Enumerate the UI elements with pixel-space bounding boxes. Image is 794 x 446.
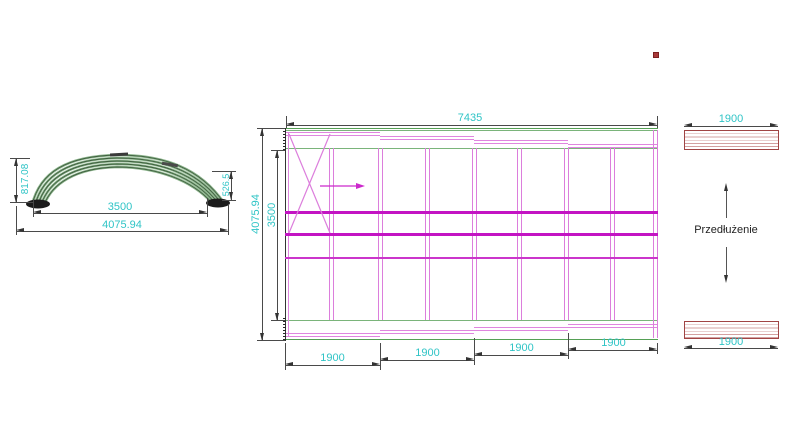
dim-line	[380, 360, 474, 361]
arrow-left-icon	[380, 357, 388, 361]
arrow-left-icon	[684, 123, 692, 127]
arrow-left-icon	[684, 345, 692, 349]
dim-text: 4075.94	[250, 181, 262, 247]
dim-text: 1900	[712, 336, 750, 348]
red-marker-dot	[653, 52, 659, 58]
arrow-down-icon	[260, 333, 264, 341]
arrow-left-icon	[285, 362, 293, 366]
dim-line	[684, 348, 778, 349]
extension-arrow-down-icon	[726, 247, 727, 277]
extension-line	[568, 333, 569, 359]
arrow-right-icon	[770, 345, 778, 349]
x-brace	[285, 128, 658, 341]
arrow-up-icon	[14, 158, 18, 166]
dim-line	[568, 350, 657, 351]
arrow-left-icon	[33, 210, 41, 214]
dim-text: 1900	[494, 342, 549, 354]
arrow-up-icon	[724, 183, 728, 191]
dim-text: 817.08	[20, 157, 31, 201]
dim-text: 3500	[266, 191, 278, 239]
dim-text: 1900	[305, 352, 360, 364]
arrow-right-icon	[466, 357, 474, 361]
extension-line	[33, 200, 34, 217]
extension-label: Przedłużenie	[688, 224, 764, 236]
dim-text: 1900	[586, 337, 641, 349]
dim-text: 1900	[400, 347, 455, 359]
arrow-right-icon	[560, 352, 568, 356]
extension-line	[228, 204, 229, 235]
dim-text: 526.5	[221, 169, 232, 201]
arrow-left-icon	[568, 347, 576, 351]
arrow-down-icon	[724, 275, 728, 283]
dim-line	[684, 126, 778, 127]
dim-line	[33, 213, 207, 214]
dim-line	[262, 128, 263, 341]
extension-bar-top	[684, 130, 779, 150]
arrow-right-icon	[199, 210, 207, 214]
dim-text: 3500	[95, 201, 145, 213]
dim-text: 7435	[440, 112, 500, 124]
extension-line	[207, 198, 208, 217]
arrow-left-icon	[286, 122, 294, 126]
arrow-right-icon	[372, 362, 380, 366]
arrow-up-icon	[260, 128, 264, 136]
extension-line	[657, 116, 658, 128]
arrow-right-icon	[770, 123, 778, 127]
dim-line	[285, 365, 380, 366]
slide-direction-arrow-icon	[320, 183, 365, 189]
dim-text: 4075.94	[90, 219, 154, 231]
arrow-down-icon	[275, 313, 279, 321]
extension-line	[657, 343, 658, 354]
arrow-left-icon	[16, 228, 24, 232]
arrow-left-icon	[474, 352, 482, 356]
dim-line	[286, 125, 657, 126]
extension-arrow-up-icon	[726, 188, 727, 218]
arrow-right-icon	[649, 122, 657, 126]
dim-line	[474, 355, 568, 356]
plan-view	[285, 128, 658, 341]
arrow-right-icon	[649, 347, 657, 351]
dim-line	[16, 231, 228, 232]
arrow-up-icon	[275, 150, 279, 158]
arrow-right-icon	[220, 228, 228, 232]
dim-text: 1900	[712, 113, 750, 125]
cad-drawing-canvas: 817.08 526.5 3500 4075.94	[0, 0, 794, 446]
arrow-down-icon	[14, 195, 18, 203]
